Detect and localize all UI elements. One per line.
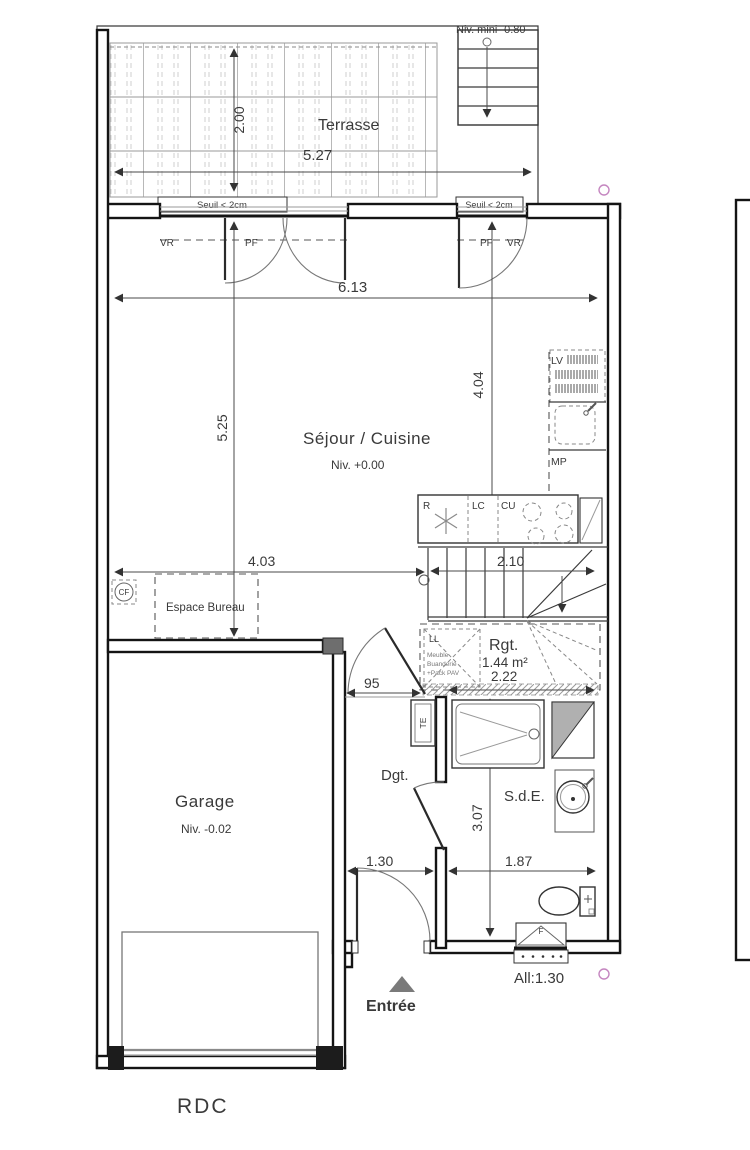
door-width-dim: 95 [364, 675, 380, 691]
shower-room-label: S.d.E. [504, 788, 545, 805]
hall-door: 95 [345, 628, 425, 697]
office-label: Espace Bureau [166, 602, 245, 614]
garage-right-wall [333, 652, 345, 1068]
exterior-steps [458, 30, 538, 125]
laundry-note-3: +Pack PAV [427, 670, 460, 677]
living-room-level: Niv. +0.00 [331, 458, 385, 472]
garage-bottom-wall [97, 1056, 345, 1068]
garage-top-wall [108, 640, 323, 652]
pf-left-label: PF [245, 238, 258, 249]
top-wall-middle [348, 204, 457, 218]
top-wall-right [527, 204, 620, 218]
terrace-min-level-label: Niv. mini -0.80 [456, 24, 525, 36]
hall-width-dim: 1.30 [366, 853, 393, 869]
marker-circle-top [599, 185, 609, 195]
storage-area: 1.44 m² [482, 655, 528, 670]
faucet-icon [588, 403, 596, 411]
hallway-label: Dgt. [381, 767, 409, 784]
laundry-note-2: Buanderie [427, 661, 457, 668]
technical-shaft [552, 702, 594, 758]
garage-label: Garage [175, 792, 235, 811]
garage-level: Niv. -0.02 [181, 822, 232, 836]
stairs: 2.10 [418, 547, 608, 621]
threshold-left-label: Seuil < 2cm [197, 200, 247, 211]
vr-left-label: VR [160, 238, 174, 249]
washer-label: LL [429, 634, 439, 644]
electrical-panel-label: TE [418, 717, 428, 728]
bottom-wall-3 [565, 941, 620, 953]
hall-depth-dim: 3.07 [469, 804, 485, 831]
sink-unit-label: MP [551, 456, 567, 468]
terrace-depth-dim: 2.00 [231, 106, 247, 133]
cooktop-label: CU [501, 501, 515, 512]
living-depth-dim: 5.25 [214, 414, 230, 441]
bath-partition-upper [436, 697, 446, 782]
sill-height-label: All:1.30 [514, 970, 564, 987]
bath-partition-lower [436, 848, 446, 948]
living-room: Séjour / Cuisine Niv. +0.00 6.13 5.25 4.… [115, 222, 597, 636]
adjacent-unit-wall [736, 200, 750, 960]
marker-circle-bottom [599, 969, 609, 979]
shower [452, 700, 544, 768]
garage-door-panel [122, 932, 318, 1050]
office-width-dim: 4.03 [248, 553, 275, 569]
terrace-room-label: Terrasse [318, 117, 379, 134]
floor-plan-drawing: Niv. mini -0.80 Terrasse 5.27 2.00 Seuil… [0, 0, 750, 1150]
garage: Garage Niv. -0.02 [108, 792, 343, 1070]
storage-label: Rgt. [489, 637, 518, 654]
right-wall [608, 204, 620, 952]
entrance-label: Entrée [366, 998, 416, 1015]
kitchen: LV MP R LC CU [418, 350, 606, 544]
entrance-arrow-icon [389, 976, 415, 992]
window-f-label: F [539, 927, 544, 936]
office-area: 4.03 CF Espace Bureau [112, 553, 424, 638]
vr-right-label: VR [507, 238, 521, 249]
garage-corner-post [323, 638, 343, 654]
living-width-dim: 6.13 [338, 279, 367, 296]
kitchen-depth-dim: 4.04 [470, 371, 486, 398]
cf-label: CF [119, 588, 130, 597]
threshold-right-label: Seuil < 2cm [465, 200, 512, 210]
terrace-decking [110, 43, 437, 197]
top-openings: VR PF PF VR [160, 207, 527, 288]
bottom-window: F [514, 923, 568, 963]
storage-width-dim: 2.22 [491, 669, 517, 684]
shower-room-width-dim: 1.87 [505, 853, 532, 869]
kitchen-sink [555, 406, 595, 444]
storage-rgt: LL Meuble Buanderie +Pack PAV Rgt. 1.44 … [420, 621, 600, 695]
toilet [539, 887, 595, 916]
entrance: Entrée [352, 868, 430, 1015]
stairs-width-dim: 2.10 [497, 553, 524, 569]
dishwasher-label: LV [551, 355, 563, 367]
left-wall [97, 30, 108, 1068]
living-room-label: Séjour / Cuisine [303, 429, 431, 448]
terrace: Niv. mini -0.80 Terrasse 5.27 2.00 Seuil… [97, 24, 538, 212]
terrace-width-dim: 5.27 [303, 147, 332, 164]
garage-door-jamb-left [108, 1046, 124, 1070]
garage-door-jamb-right [316, 1046, 343, 1070]
fridge-label: R [423, 501, 430, 512]
laundry-note-1: Meuble [427, 652, 449, 659]
pf-right-label: PF [480, 238, 493, 249]
washbasin [555, 770, 594, 832]
floor-title: RDC [177, 1095, 229, 1118]
lc-label: LC [472, 501, 485, 512]
floor-plan-page: Niv. mini -0.80 Terrasse 5.27 2.00 Seuil… [0, 0, 750, 1150]
